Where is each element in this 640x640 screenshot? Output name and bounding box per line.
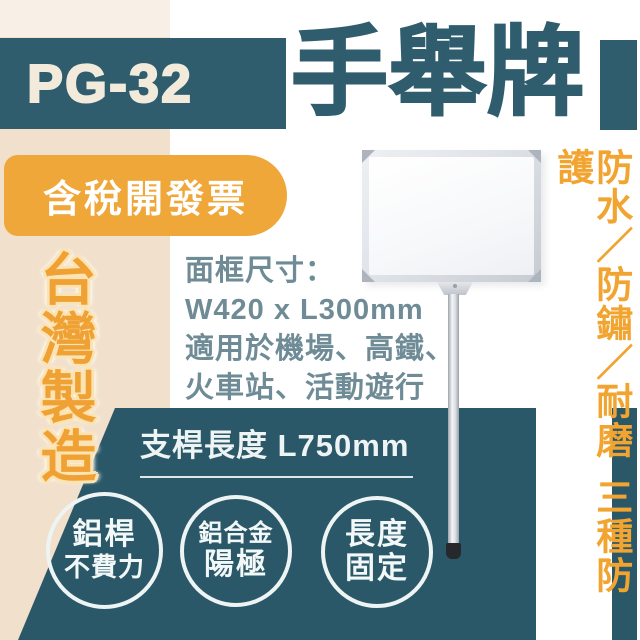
protection-features-text: 防水／防鏽／耐磨 [591, 148, 632, 460]
feature-circle-fixed-length: 長度 固定 [321, 496, 433, 608]
bracket-screw-dot [453, 284, 457, 288]
product-title: 手舉牌 [291, 22, 585, 124]
feature-circle-line2: 陽極 [204, 548, 268, 583]
model-code-banner: PG-32 [0, 38, 286, 129]
sign-pole [448, 294, 459, 546]
feature-circle-line1: 長度 [345, 518, 409, 553]
model-code-label: PG-32 [27, 53, 193, 115]
feature-circle-line2: 固定 [345, 552, 409, 587]
spec-line-usage-2: 火車站、活動遊行 [185, 369, 455, 408]
product-banner: PG-32 手舉牌 含稅開發票 台灣製造 面框尺寸： W420 x L300mm… [0, 0, 640, 640]
feature-circle-line2: 不費力 [64, 553, 145, 583]
tax-invoice-badge: 含稅開發票 [4, 155, 287, 236]
made-in-taiwan-label: 台灣製造 [36, 250, 92, 486]
spec-line-usage-1: 適用於機場、高鐵、 [185, 330, 455, 369]
feature-circle-line1: 鋁桿 [73, 518, 137, 553]
sign-board-frame [362, 150, 541, 282]
spec-line-dimensions: W420 x L300mm [185, 291, 455, 330]
tax-invoice-label: 含稅開發票 [43, 168, 248, 223]
feature-circle-aluminum-pole: 鋁桿 不費力 [46, 492, 163, 609]
feature-circle-line1: 鋁合金 [199, 520, 274, 548]
sign-pole-tip [446, 543, 461, 559]
protection-note: 防水／防鏽／耐磨三種防護 [552, 148, 630, 628]
pole-length-label: 支桿長度 L750mm [140, 420, 413, 478]
top-left-background-block [0, 0, 170, 37]
feature-circle-anodized-alloy: 鋁合金 陽極 [180, 495, 292, 607]
sign-board-face [369, 157, 534, 275]
title-accent-square [600, 40, 637, 130]
